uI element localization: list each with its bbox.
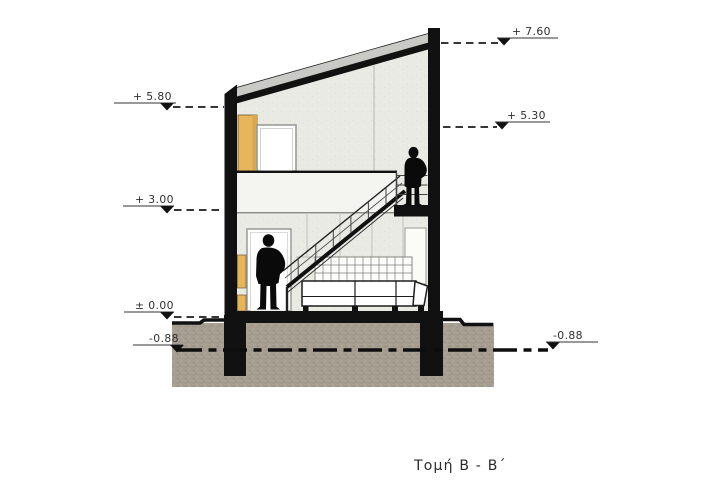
landing-slab xyxy=(394,205,432,217)
level-label: + 3.00 xyxy=(135,193,174,206)
ground xyxy=(172,320,494,388)
ground-surface-line-left xyxy=(172,320,226,323)
drawing-title: Τομή B - B΄ xyxy=(413,458,507,474)
elevation-arrow-icon xyxy=(495,122,509,130)
level-marker-minus-0-88-right: -0.88 xyxy=(546,329,598,350)
shelf-grid xyxy=(315,257,412,281)
level-label: ± 0.00 xyxy=(135,299,174,312)
sofa xyxy=(302,281,428,311)
elevation-arrow-icon xyxy=(497,38,511,46)
foundation-left xyxy=(224,315,246,376)
level-label: + 5.80 xyxy=(133,90,172,103)
level-marker-5-30: + 5.30 xyxy=(443,109,550,130)
parapet-top-edge xyxy=(237,171,397,173)
lower-cabinet-top xyxy=(238,255,247,288)
lower-cabinet-bottom xyxy=(238,295,247,311)
level-marker-7-60: + 7.60 xyxy=(441,25,558,46)
level-marker-5-80: + 5.80 xyxy=(114,90,224,111)
ground-mass xyxy=(172,323,494,387)
left-wall xyxy=(225,85,238,312)
level-label: + 5.30 xyxy=(507,109,546,122)
level-marker-0-00: ± 0.00 xyxy=(124,299,224,320)
section-drawing-sheet: + 7.60 + 5.80 + 5.30 + 3.00 ± 0.00 xyxy=(0,0,705,491)
elevation-arrow-icon xyxy=(160,312,174,320)
sofa-armrest xyxy=(413,282,428,306)
upper-door-leaf xyxy=(261,129,293,172)
level-marker-3-00: + 3.00 xyxy=(123,193,224,214)
ground-floor-slab xyxy=(225,311,444,323)
level-marker-minus-0-88-left: -0.88 xyxy=(133,332,184,353)
level-label: -0.88 xyxy=(553,329,583,342)
section-drawing: + 7.60 + 5.80 + 5.30 + 3.00 ± 0.00 xyxy=(0,0,705,491)
mezzanine-floor-edge xyxy=(237,212,397,213)
foundation-right xyxy=(420,315,443,376)
elevation-arrow-icon xyxy=(160,103,174,111)
right-wall xyxy=(428,28,440,311)
level-label: -0.88 xyxy=(149,332,179,345)
elevation-arrow-icon xyxy=(546,342,560,350)
level-label: + 7.60 xyxy=(512,25,551,38)
elevation-arrow-icon xyxy=(160,206,174,214)
